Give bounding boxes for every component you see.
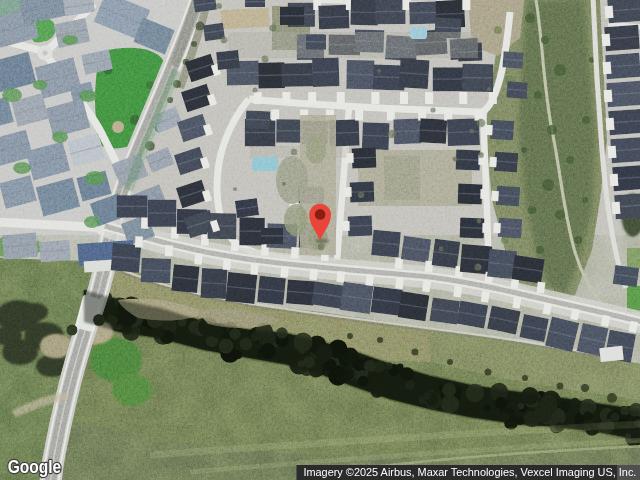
svg-text:Imagery ©2025 Airbus, Maxar Te: Imagery ©2025 Airbus, Maxar Technologies…	[303, 466, 636, 478]
svg-text:Google: Google	[8, 456, 62, 477]
